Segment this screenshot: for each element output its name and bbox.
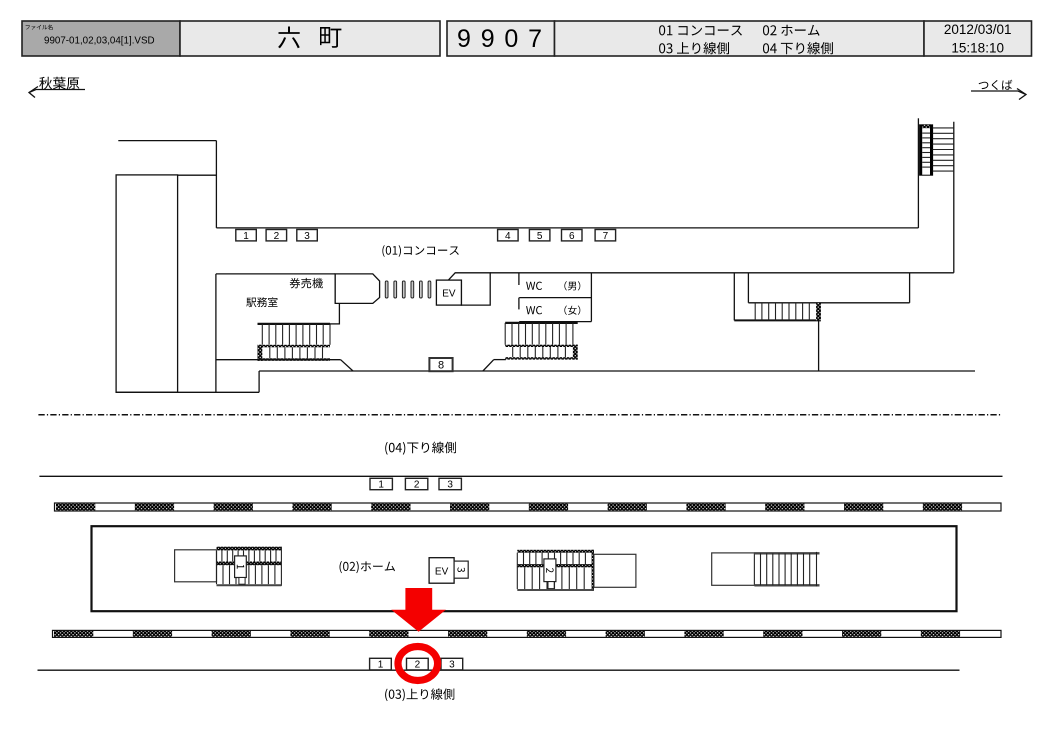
svg-text:4: 4 bbox=[505, 231, 511, 242]
svg-text:1: 1 bbox=[243, 231, 249, 242]
svg-text:EV: EV bbox=[435, 567, 449, 578]
svg-text:6: 6 bbox=[569, 231, 575, 242]
svg-text:2: 2 bbox=[415, 660, 421, 671]
svg-text:2: 2 bbox=[414, 480, 420, 491]
svg-text:2012/03/01: 2012/03/01 bbox=[944, 22, 1012, 37]
svg-text:2: 2 bbox=[274, 231, 280, 242]
svg-text:9907: 9907 bbox=[457, 25, 552, 53]
svg-text:15:18:10: 15:18:10 bbox=[951, 41, 1004, 56]
svg-text:3: 3 bbox=[304, 231, 310, 242]
svg-text:3: 3 bbox=[449, 660, 455, 671]
svg-text:9907-01,02,03,04[1].VSD: 9907-01,02,03,04[1].VSD bbox=[44, 36, 155, 47]
svg-text:1: 1 bbox=[378, 480, 384, 491]
svg-text:EV: EV bbox=[442, 289, 456, 300]
svg-text:1: 1 bbox=[378, 660, 384, 671]
svg-text:7: 7 bbox=[603, 231, 609, 242]
svg-text:8: 8 bbox=[438, 360, 444, 372]
svg-text:3: 3 bbox=[447, 480, 453, 491]
svg-text:5: 5 bbox=[537, 231, 543, 242]
